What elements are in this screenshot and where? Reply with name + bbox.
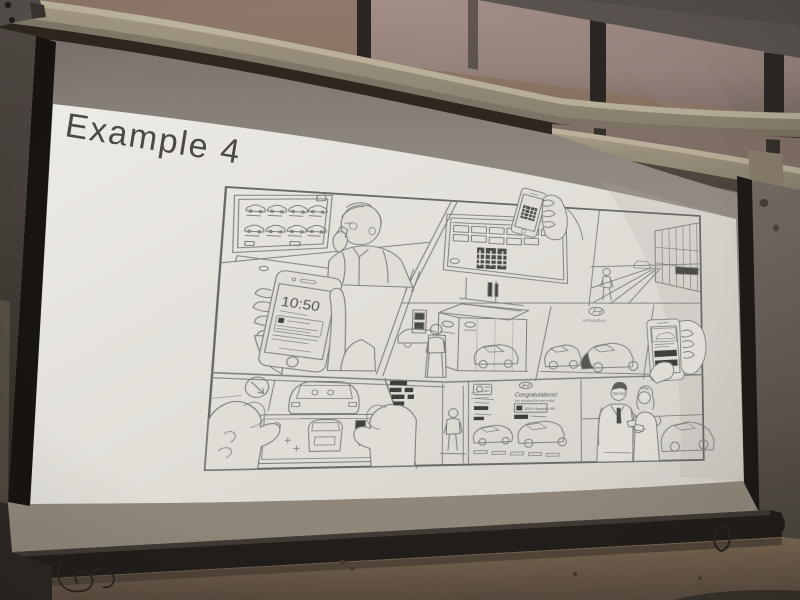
svg-text:2014 Hyundai i40: 2014 Hyundai i40 xyxy=(524,406,555,410)
svg-text:You unlocked the new model: You unlocked the new model xyxy=(514,399,554,402)
svg-text:Congratulations!: Congratulations! xyxy=(515,392,558,398)
svg-text:HYUNDAI: HYUNDAI xyxy=(583,318,606,324)
